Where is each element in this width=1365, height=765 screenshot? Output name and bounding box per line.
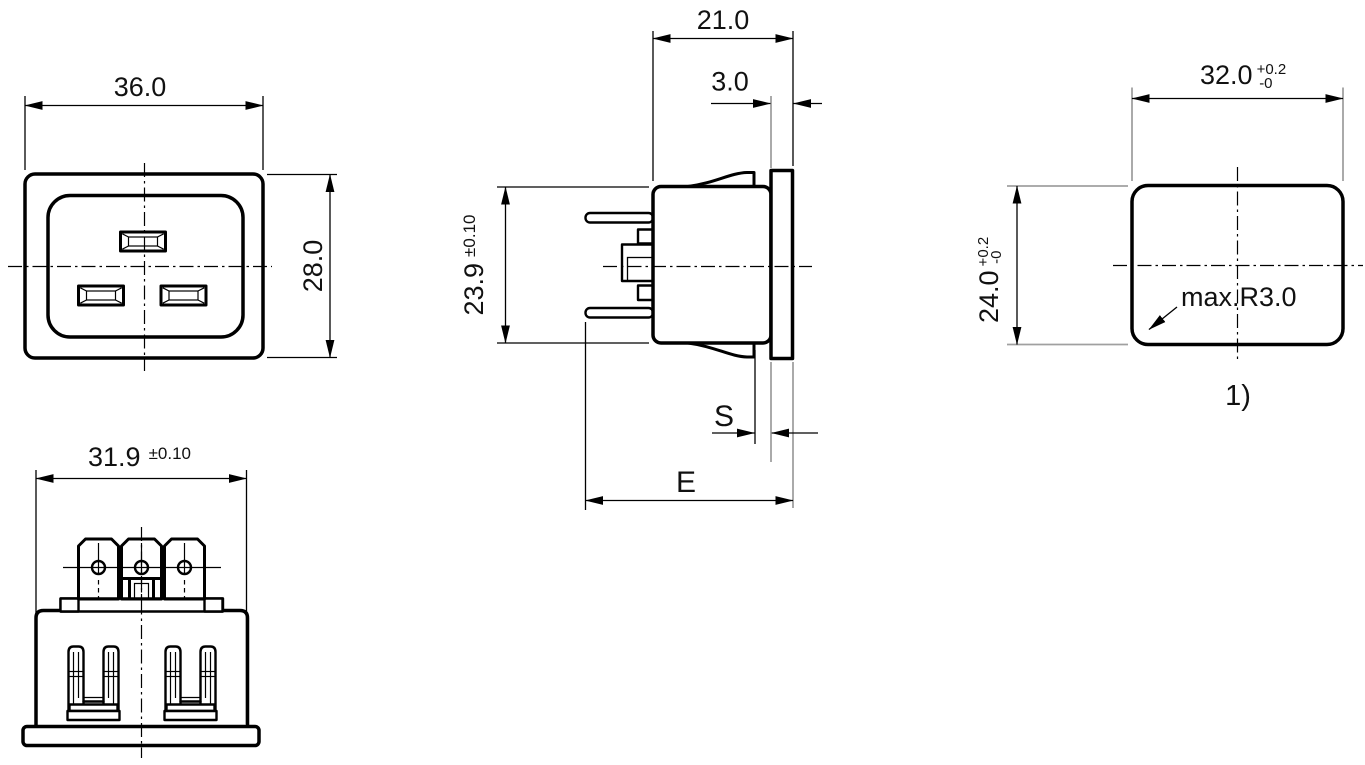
dim-rear-width-value: 31.9: [88, 442, 141, 472]
dim-cutout-width: 32.0+0.2-0: [1200, 60, 1286, 92]
side-body: [653, 187, 771, 344]
cutout-width-dimension: 32.0+0.2-0: [1132, 60, 1343, 181]
side-flange-dimension: 3.0: [711, 67, 822, 169]
side-view: 21.0 3.0 23.9±0.10 S E: [459, 5, 822, 510]
dim-cutout-width-value: 32.0: [1200, 60, 1253, 90]
connector-dimension-drawing: 36.0 28.0: [0, 0, 1365, 765]
dim-cutout-height-tol-lower: -0: [988, 250, 1005, 263]
dim-side-height: 23.9±0.10: [459, 215, 489, 316]
dim-cutout-height: 24.0+0.2-0: [974, 237, 1005, 323]
dim-cutout-width-tol-lower: -0: [1259, 75, 1272, 92]
front-view: 36.0 28.0: [8, 72, 337, 371]
side-top-latch: [688, 173, 754, 187]
side-top-pin: [586, 213, 654, 223]
dim-side-flange: 3.0: [711, 67, 749, 97]
side-panel-thickness-dimension: S: [712, 350, 818, 508]
cutout-height-dimension: 24.0+0.2-0: [974, 186, 1128, 345]
front-width-dimension: 36.0: [25, 72, 263, 170]
side-bottom-pin: [586, 308, 654, 318]
dim-side-height-tolerance: ±0.10: [460, 215, 479, 257]
note-max-radius: max.R3.0: [1181, 282, 1297, 312]
dim-rear-width-tolerance: ±0.10: [149, 444, 191, 463]
dim-side-height-value: 23.9: [459, 263, 489, 316]
side-overall-depth-dimension: E: [586, 322, 794, 510]
dim-side-depth: 21.0: [697, 5, 750, 35]
label-depth-e: E: [676, 466, 696, 499]
side-flange: [771, 171, 793, 359]
footnote-marker: 1): [1225, 380, 1251, 412]
side-bottom-latch: [688, 343, 754, 357]
dim-front-width: 36.0: [114, 72, 167, 102]
front-height-dimension: 28.0: [267, 175, 337, 358]
technical-drawing-page: 36.0 28.0: [0, 0, 1365, 765]
dim-front-height: 28.0: [298, 240, 328, 293]
panel-cutout-view: 32.0+0.2-0 24.0+0.2-0 max.R3.0 1): [974, 60, 1363, 412]
dim-rear-width: 31.9±0.10: [88, 442, 191, 472]
side-height-dimension: 23.9±0.10: [459, 187, 649, 343]
dim-cutout-height-value: 24.0: [974, 270, 1004, 323]
rear-view: 31.9±0.10: [23, 442, 259, 758]
label-panel-thickness: S: [714, 400, 734, 433]
